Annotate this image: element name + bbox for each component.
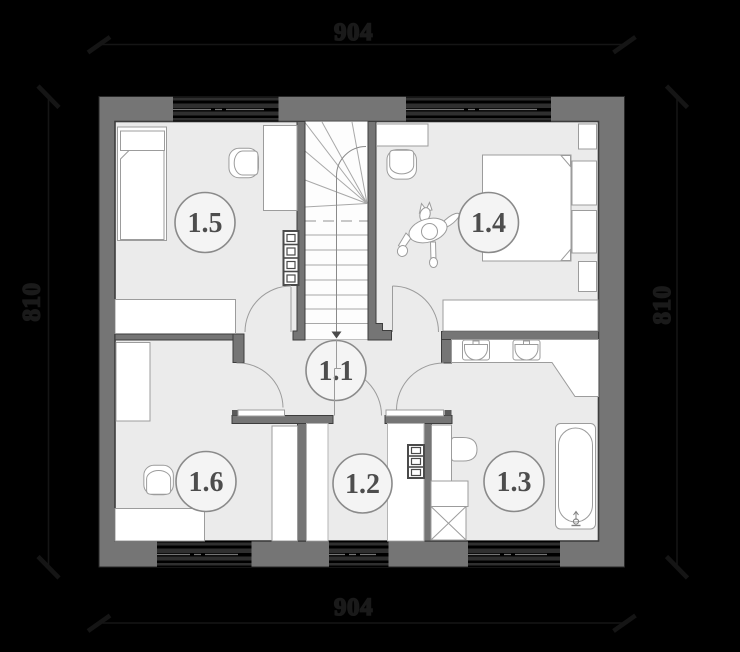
svg-text:1.5: 1.5 [188, 208, 223, 239]
svg-text:1.3: 1.3 [497, 467, 532, 498]
svg-text:1.2: 1.2 [345, 469, 380, 500]
svg-text:1.6: 1.6 [189, 467, 224, 498]
svg-text:904: 904 [334, 19, 373, 46]
svg-text:904: 904 [334, 594, 373, 621]
svg-text:810: 810 [649, 286, 676, 325]
svg-text:810: 810 [19, 283, 46, 322]
svg-text:1.4: 1.4 [471, 208, 506, 239]
